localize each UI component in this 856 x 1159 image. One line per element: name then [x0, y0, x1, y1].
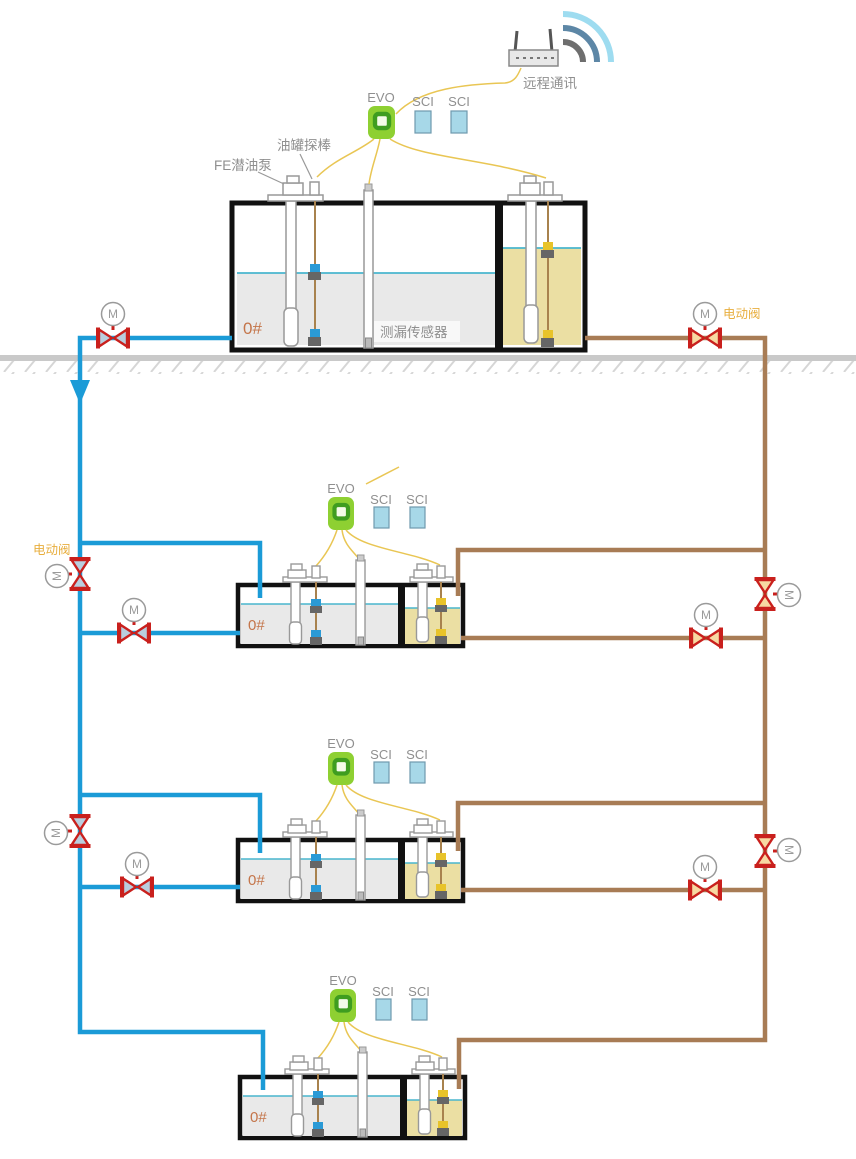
sci-module: [451, 111, 467, 133]
motor-badge: [46, 565, 69, 588]
tank-flange: [268, 195, 323, 201]
pump-head: [283, 183, 303, 195]
electric-valve-caption: 电动阀: [33, 543, 71, 557]
remote-comm-router: 远程通讯: [509, 14, 611, 91]
fuel-station-schematic: M EVO SCI SCI: [0, 0, 856, 1154]
pump-head: [520, 183, 540, 195]
tank-flange: [508, 195, 562, 201]
motor-badge: [45, 822, 68, 845]
probe-connector: [544, 182, 553, 195]
tank-fuel-tan: [503, 248, 581, 345]
tank-unit-row4: [240, 973, 465, 1138]
probe-connector: [310, 182, 319, 195]
supply-pipe-blue: [80, 338, 263, 1090]
ground-line: [0, 355, 856, 374]
motor-badge: [695, 604, 718, 627]
leak-sensor-caption: 测漏传感器: [380, 324, 448, 340]
level-float: [310, 264, 320, 272]
router-antenna: [550, 29, 552, 52]
evo-label: EVO: [367, 90, 394, 105]
tank-probe-caption: 油罐探棒: [277, 138, 331, 153]
station-controller: EVO SCI SCI: [317, 68, 546, 184]
callout-line: [300, 154, 312, 179]
fuel-grade-label: 0#: [243, 319, 262, 338]
remote-comm-caption: 远程通讯: [523, 76, 577, 91]
level-float: [543, 242, 553, 250]
tank-unit-row2: [238, 481, 463, 646]
sci-label: SCI: [448, 94, 470, 109]
sci-module: [415, 111, 431, 133]
flow-arrow: [70, 380, 90, 404]
fe-pump-caption: FE潜油泵: [214, 158, 272, 173]
submersible-pump: [524, 305, 538, 343]
motor-badge: [694, 303, 717, 326]
motor-badge: [778, 839, 801, 862]
main-tank-station: 0# 测漏传感器 油罐探棒 FE潜油泵: [214, 138, 585, 350]
leak-sensor-tube: [364, 184, 373, 348]
brown-main-pipe: [459, 338, 765, 1089]
comm-wire-stub: [366, 467, 399, 484]
motor-badge: [123, 599, 146, 622]
motor-badge: [126, 853, 149, 876]
level-float: [310, 329, 320, 337]
electric-valve-caption: 电动阀: [723, 307, 761, 321]
callout-line: [258, 172, 284, 184]
router-antenna: [515, 31, 517, 52]
blue-main-pipe: [80, 338, 263, 1090]
schematic-canvas: M EVO SCI SCI: [0, 0, 856, 1154]
motor-badge: [778, 584, 801, 607]
motor-badge: [102, 303, 125, 326]
submersible-pump: [284, 308, 298, 346]
evo-screen: [375, 114, 389, 128]
tank-unit-row3: [238, 736, 463, 901]
level-float: [543, 330, 553, 338]
return-pipe-brown: [458, 338, 765, 1089]
motor-badge: [694, 856, 717, 879]
sci-label: SCI: [412, 94, 434, 109]
wifi-icon: [563, 14, 611, 62]
